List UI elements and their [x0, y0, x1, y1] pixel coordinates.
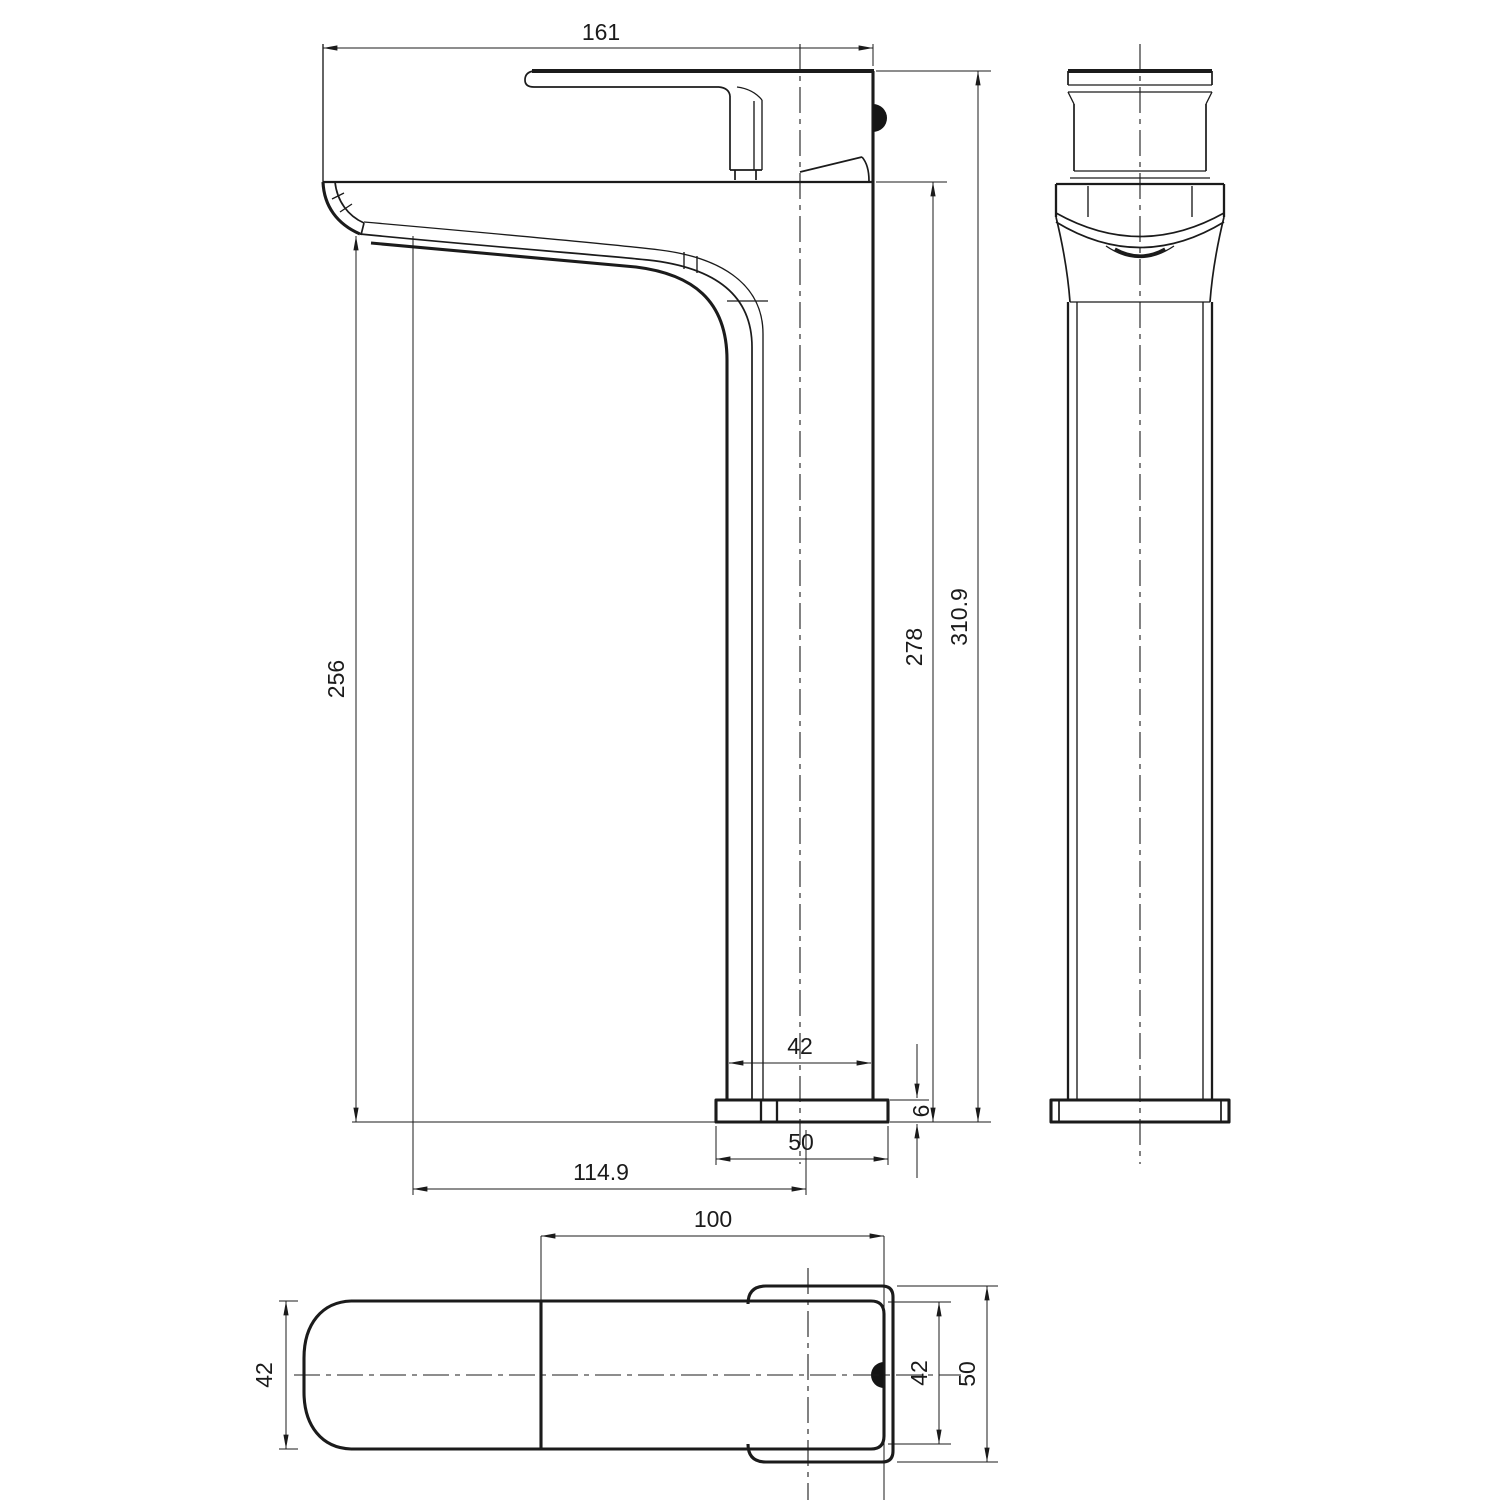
neck-right-edges	[754, 100, 762, 170]
base-flange-ticks	[761, 1100, 777, 1122]
top-view	[294, 1268, 961, 1500]
dim-handle-length-label: 100	[694, 1206, 732, 1232]
spout-underside-line-2	[360, 234, 752, 1099]
neck-bevel	[737, 87, 762, 100]
side-view-dimensions: 161 310.9 278 256 114.9 42 6 50	[323, 19, 991, 1195]
top-view-dimensions: 42 100 42 50	[251, 1206, 998, 1500]
dim-1149-extensions	[413, 236, 806, 1195]
front-view	[1051, 44, 1229, 1164]
dim-handle-width-left-label: 42	[251, 1362, 277, 1388]
drawing-canvas: 161 310.9 278 256 114.9 42 6 50	[0, 0, 1500, 1500]
lever-tip	[525, 71, 534, 87]
dim-spout-tip-height-label: 256	[323, 660, 349, 698]
dim-100-extensions	[541, 1236, 884, 1500]
side-view	[323, 44, 888, 1164]
dim-column-width-label: 42	[787, 1033, 813, 1059]
spout-underside-line-3	[371, 243, 727, 1099]
base-flange-side	[716, 1100, 888, 1122]
technical-drawing: 161 310.9 278 256 114.9 42 6 50	[0, 0, 1500, 1500]
top-body-left-corners	[748, 1286, 766, 1462]
dim-overall-height-label: 310.9	[946, 588, 972, 646]
dim-base-depth-label: 50	[954, 1361, 980, 1387]
dim-spout-top-height-label: 278	[901, 628, 927, 666]
lever-neck-corner	[719, 87, 730, 96]
dim-spout-reach-label: 114.9	[573, 1159, 629, 1185]
collar-base	[730, 170, 762, 180]
dim-base-width-label: 50	[788, 1129, 814, 1155]
dim-overall-length-label: 161	[582, 19, 620, 45]
body-back-slant	[800, 157, 869, 181]
dim-handle-width-right-label: 42	[906, 1360, 932, 1386]
spout-tip-inner-curve	[335, 182, 364, 223]
spout-tip-outer-curve	[323, 182, 360, 234]
indicator-dot	[873, 104, 887, 132]
spout-underside-line-1	[364, 222, 763, 1099]
spout-tip-end	[361, 223, 364, 235]
dim-base-thickness-label: 6	[908, 1105, 934, 1118]
